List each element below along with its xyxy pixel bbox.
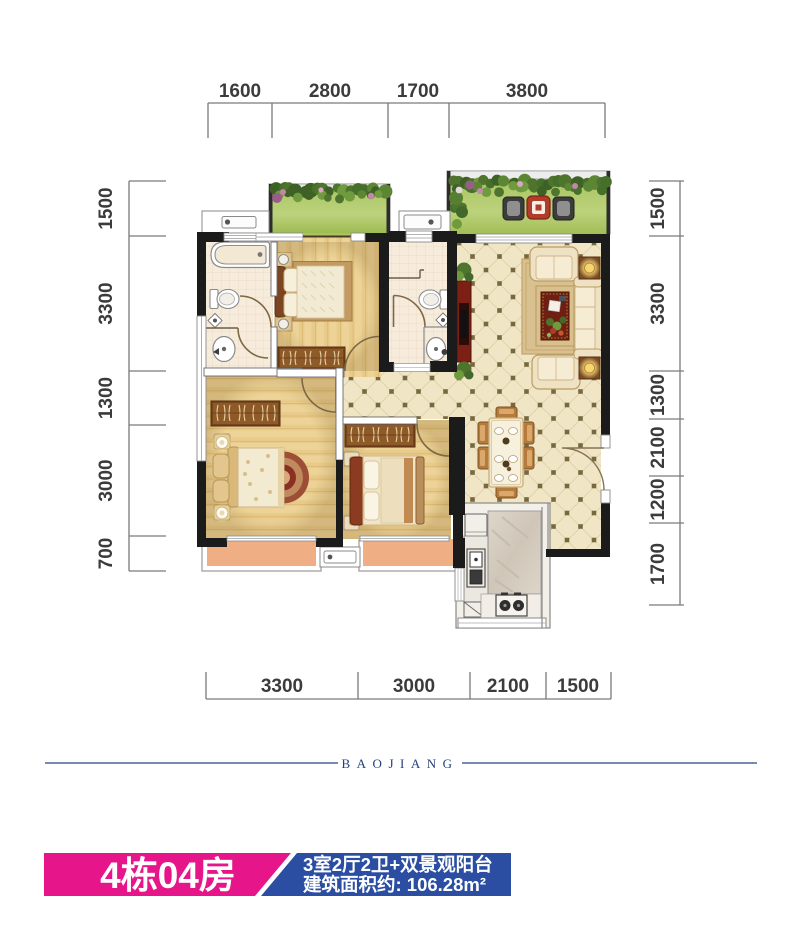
svg-text:1300: 1300	[96, 377, 117, 419]
svg-text:3室2厅2卫+双景观阳台: 3室2厅2卫+双景观阳台	[303, 854, 493, 875]
svg-text:3300: 3300	[261, 676, 303, 697]
svg-text:3800: 3800	[506, 81, 548, 102]
svg-text:1500: 1500	[96, 187, 117, 229]
svg-text:1700: 1700	[397, 81, 439, 102]
svg-text:4栋04房: 4栋04房	[100, 855, 236, 896]
svg-text:2100: 2100	[487, 676, 529, 697]
svg-text:BAOJIANG: BAOJIANG	[342, 756, 459, 771]
svg-text:3300: 3300	[96, 282, 117, 324]
svg-text:2100: 2100	[648, 426, 669, 468]
svg-text:1500: 1500	[557, 676, 599, 697]
svg-text:700: 700	[96, 538, 117, 570]
svg-text:1300: 1300	[648, 374, 669, 416]
svg-text:1600: 1600	[219, 81, 261, 102]
svg-text:1700: 1700	[648, 543, 669, 585]
svg-text:3000: 3000	[393, 676, 435, 697]
svg-text:3300: 3300	[648, 282, 669, 324]
svg-text:1200: 1200	[648, 478, 669, 520]
svg-text:2800: 2800	[309, 81, 351, 102]
svg-text:3000: 3000	[96, 459, 117, 501]
svg-text:1500: 1500	[648, 187, 669, 229]
svg-text:建筑面积约: 106.28m²: 建筑面积约: 106.28m²	[303, 874, 486, 895]
